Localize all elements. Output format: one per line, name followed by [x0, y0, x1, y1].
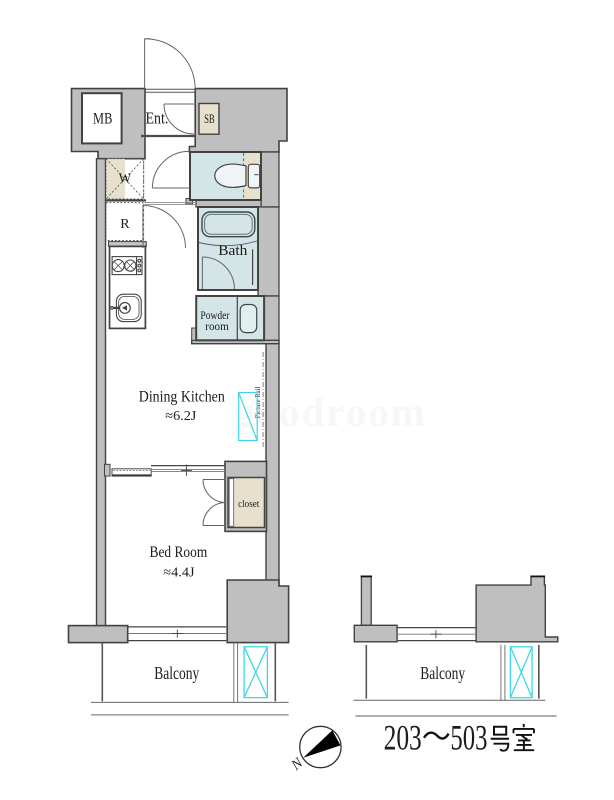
svg-text:203: 203: [384, 718, 422, 758]
svg-text:Bed Room: Bed Room: [150, 544, 208, 561]
svg-text:≈6.2J: ≈6.2J: [165, 409, 197, 424]
svg-text:SB: SB: [204, 112, 215, 126]
svg-text:MB: MB: [93, 110, 112, 127]
svg-text:Ent.: Ent.: [146, 109, 169, 128]
svg-text:Dining Kitchen: Dining Kitchen: [139, 389, 225, 406]
svg-text:≈4.4J: ≈4.4J: [163, 565, 195, 580]
svg-text:Balcony: Balcony: [420, 663, 465, 683]
svg-text:Picture Rail: Picture Rail: [254, 387, 262, 419]
svg-text:closet: closet: [238, 498, 259, 510]
svg-text:R: R: [120, 217, 130, 232]
svg-text:room: room: [205, 320, 228, 333]
svg-text:Balcony: Balcony: [154, 663, 199, 683]
svg-text:Bath: Bath: [218, 243, 248, 259]
svg-text:503: 503: [450, 718, 487, 758]
svg-text:W: W: [119, 172, 132, 187]
